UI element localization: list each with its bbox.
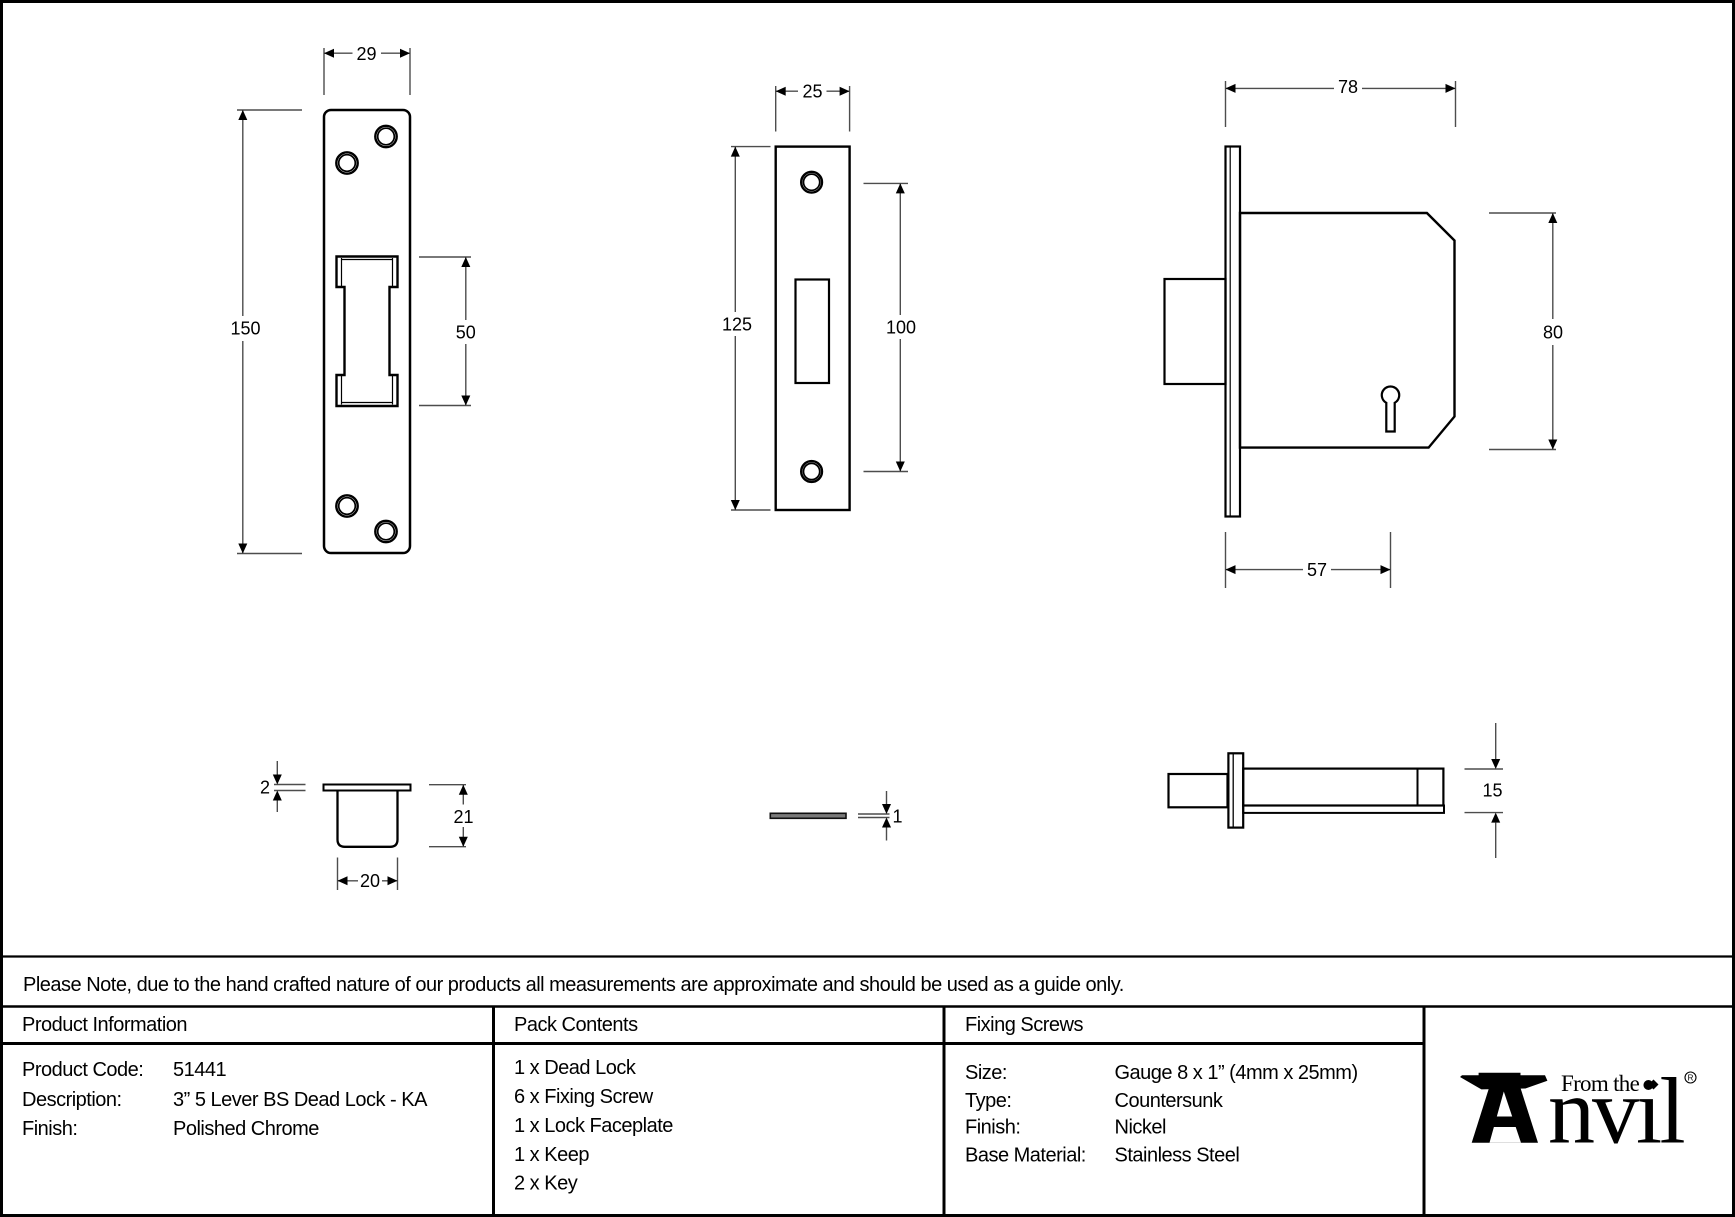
svg-text:125: 125	[722, 315, 752, 335]
svg-text:Product Code:: Product Code:	[22, 1059, 143, 1081]
svg-text:6 x Fixing Screw: 6 x Fixing Screw	[514, 1086, 654, 1108]
svg-text:2: 2	[260, 778, 270, 798]
svg-text:15: 15	[1482, 781, 1502, 801]
svg-text:Please Note, due to the hand c: Please Note, due to the hand crafted nat…	[23, 974, 1124, 996]
svg-text:21: 21	[453, 807, 473, 827]
svg-text:Fixing Screws: Fixing Screws	[965, 1014, 1083, 1036]
svg-text:l: l	[1660, 1060, 1686, 1164]
svg-text:57: 57	[1307, 560, 1327, 580]
svg-text:50: 50	[456, 323, 476, 343]
svg-text:Polished Chrome: Polished Chrome	[173, 1118, 319, 1140]
svg-text:Gauge 8 x 1” (4mm x 25mm): Gauge 8 x 1” (4mm x 25mm)	[1115, 1062, 1358, 1084]
svg-text:25: 25	[802, 82, 822, 102]
svg-text:100: 100	[886, 318, 916, 338]
svg-text:Pack Contents: Pack Contents	[514, 1014, 638, 1036]
svg-text:nvi: nvi	[1548, 1060, 1661, 1164]
svg-text:1: 1	[892, 807, 902, 827]
svg-text:Description:: Description:	[22, 1089, 122, 1111]
svg-text:78: 78	[1338, 77, 1358, 97]
svg-text:Size:: Size:	[965, 1062, 1007, 1084]
svg-text:Finish:: Finish:	[22, 1118, 77, 1140]
svg-text:1 x Lock Faceplate: 1 x Lock Faceplate	[514, 1115, 673, 1137]
svg-text:150: 150	[230, 319, 260, 339]
svg-text:51441: 51441	[173, 1059, 226, 1081]
svg-text:Stainless Steel: Stainless Steel	[1115, 1145, 1240, 1167]
svg-text:1 x Keep: 1 x Keep	[514, 1144, 589, 1166]
svg-text:Nickel: Nickel	[1115, 1117, 1167, 1139]
svg-text:1 x Dead Lock: 1 x Dead Lock	[514, 1057, 637, 1079]
svg-text:3” 5 Lever BS Dead Lock - KA: 3” 5 Lever BS Dead Lock - KA	[173, 1089, 428, 1111]
svg-text:Type:: Type:	[965, 1090, 1011, 1112]
svg-text:2 x Key: 2 x Key	[514, 1173, 578, 1195]
svg-text:Finish:: Finish:	[965, 1117, 1020, 1139]
svg-text:R: R	[1688, 1074, 1694, 1083]
svg-text:Base Material:: Base Material:	[965, 1145, 1086, 1167]
svg-text:20: 20	[360, 871, 380, 891]
svg-text:Product Information: Product Information	[22, 1014, 187, 1036]
svg-text:80: 80	[1543, 323, 1563, 343]
svg-text:29: 29	[356, 44, 376, 64]
svg-text:Countersunk: Countersunk	[1115, 1090, 1224, 1112]
